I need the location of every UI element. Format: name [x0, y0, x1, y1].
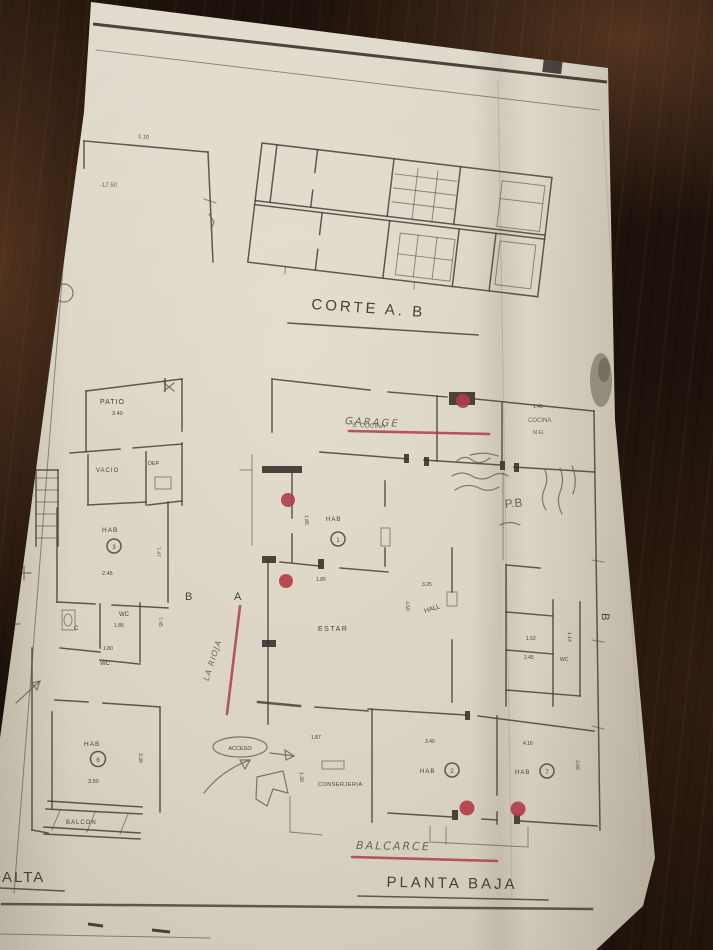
room-label-hab1: HAB: [326, 517, 341, 523]
bottom-titles: BALCARCE PLANTA BAJA ALTA: [0, 839, 548, 900]
red-line-la-rioja: [227, 606, 240, 714]
room-label-hab7: HAB: [515, 770, 530, 776]
red-door-marker: [281, 493, 295, 507]
corte-section-drawing: [247, 143, 552, 304]
dim-label: 1.80: [103, 646, 113, 652]
corte-title-underline: [288, 323, 478, 335]
room-label-patio: PATIO: [100, 399, 125, 406]
dim-label: 4.50: [404, 601, 410, 611]
roof-plan-fragment: 1.10 -17.50: [84, 134, 216, 262]
room-label-hab3: HAB: [102, 527, 118, 534]
dim-label: 7.47: [155, 547, 161, 557]
cocina-label: COCINA: [528, 418, 551, 424]
dim-label: 1.87: [311, 735, 321, 741]
s-cocina-label: S. COCINA: [352, 422, 386, 430]
dim-label: 1.45: [533, 404, 543, 410]
pb-note: P.B: [504, 495, 523, 510]
planta-baja-title: PLANTA BAJA: [386, 874, 517, 893]
acceso-label: ACCESO: [228, 746, 252, 752]
dim-label: 3.25: [422, 582, 432, 588]
dim-label: 3.40: [425, 739, 435, 745]
dim-label: 1.10: [138, 134, 149, 141]
planta-baja-plan: GARAGE S. COCINA 1.45 COCINA M.EL P.B HA…: [185, 379, 611, 847]
dim-label: 2.45: [524, 655, 534, 661]
room-label-hab2: HAB: [420, 769, 435, 775]
conserjeria-label: CONSERJERIA: [318, 782, 363, 788]
hole-punch-mark: [55, 284, 73, 302]
room-label-balcon: BALCON: [66, 820, 97, 826]
section-marker-b: B: [185, 591, 192, 603]
corte-title: CORTE A. B: [311, 296, 426, 321]
la-rioja-label: LA RIOJA: [202, 639, 224, 682]
room-label-wc3: WC: [560, 657, 569, 663]
cocina-sub-label: M.EL: [533, 430, 545, 436]
room-label-estar: ESTAR: [318, 626, 348, 633]
photo-of-plan-on-table: 1.10 -17.50: [0, 0, 713, 950]
sheet-frame: [0, 24, 645, 938]
level-note: -17.50: [100, 183, 118, 189]
dim-label: 1.85: [303, 515, 309, 525]
dim-label: 2.45: [102, 571, 113, 577]
room-number-2: 2: [450, 769, 454, 775]
plan-drawing: 1.10 -17.50: [0, 0, 713, 950]
red-door-marker: [511, 802, 526, 817]
handwritten-scribbles: [452, 453, 575, 525]
dim-label: 3.40: [112, 411, 123, 417]
red-door-marker: [456, 394, 470, 408]
room-number-3: 3: [112, 545, 116, 551]
room-label-hab6: HAB: [84, 741, 100, 748]
section-marker-a: A: [234, 591, 242, 603]
planta-alta-plan: PATIO 3.40 VACIO DEP HAB 3 2.45 7.47 WC …: [8, 379, 182, 839]
planta-alta-title: ALTA: [2, 869, 45, 886]
room-label-hall: HALL: [423, 603, 441, 615]
room-label-wc2: WC: [100, 661, 111, 667]
dim-label: 1.30: [298, 772, 304, 782]
room-number-7: 7: [545, 770, 549, 776]
room-label-wc1: WC: [119, 612, 130, 618]
red-door-marker: [279, 574, 293, 588]
room-label-vacio: VACIO: [96, 468, 119, 474]
room-number-6: 6: [96, 758, 100, 764]
dim-label: 7.45: [157, 617, 163, 627]
red-underline-s-cocina: [349, 431, 489, 434]
dim-label: 1.14: [566, 632, 572, 642]
red-underline-balcarce: [352, 857, 497, 861]
dim-label: 3.30: [137, 753, 143, 763]
room-label-closet: C: [74, 626, 79, 632]
dim-label: 1.85: [316, 577, 326, 583]
section-marker-b-right: B: [599, 613, 611, 621]
red-door-marker: [460, 801, 475, 816]
room-label-dep: DEP: [148, 461, 160, 467]
dim-label: 1.52: [526, 636, 536, 642]
street-label-balcarce: BALCARCE: [356, 839, 431, 853]
dim-label: 3.50: [88, 779, 99, 785]
dim-label: 4.16: [523, 741, 533, 747]
dim-label: 1.85: [114, 623, 124, 629]
room-number-1: 1: [336, 538, 340, 544]
dim-label: 3.06: [574, 760, 580, 770]
